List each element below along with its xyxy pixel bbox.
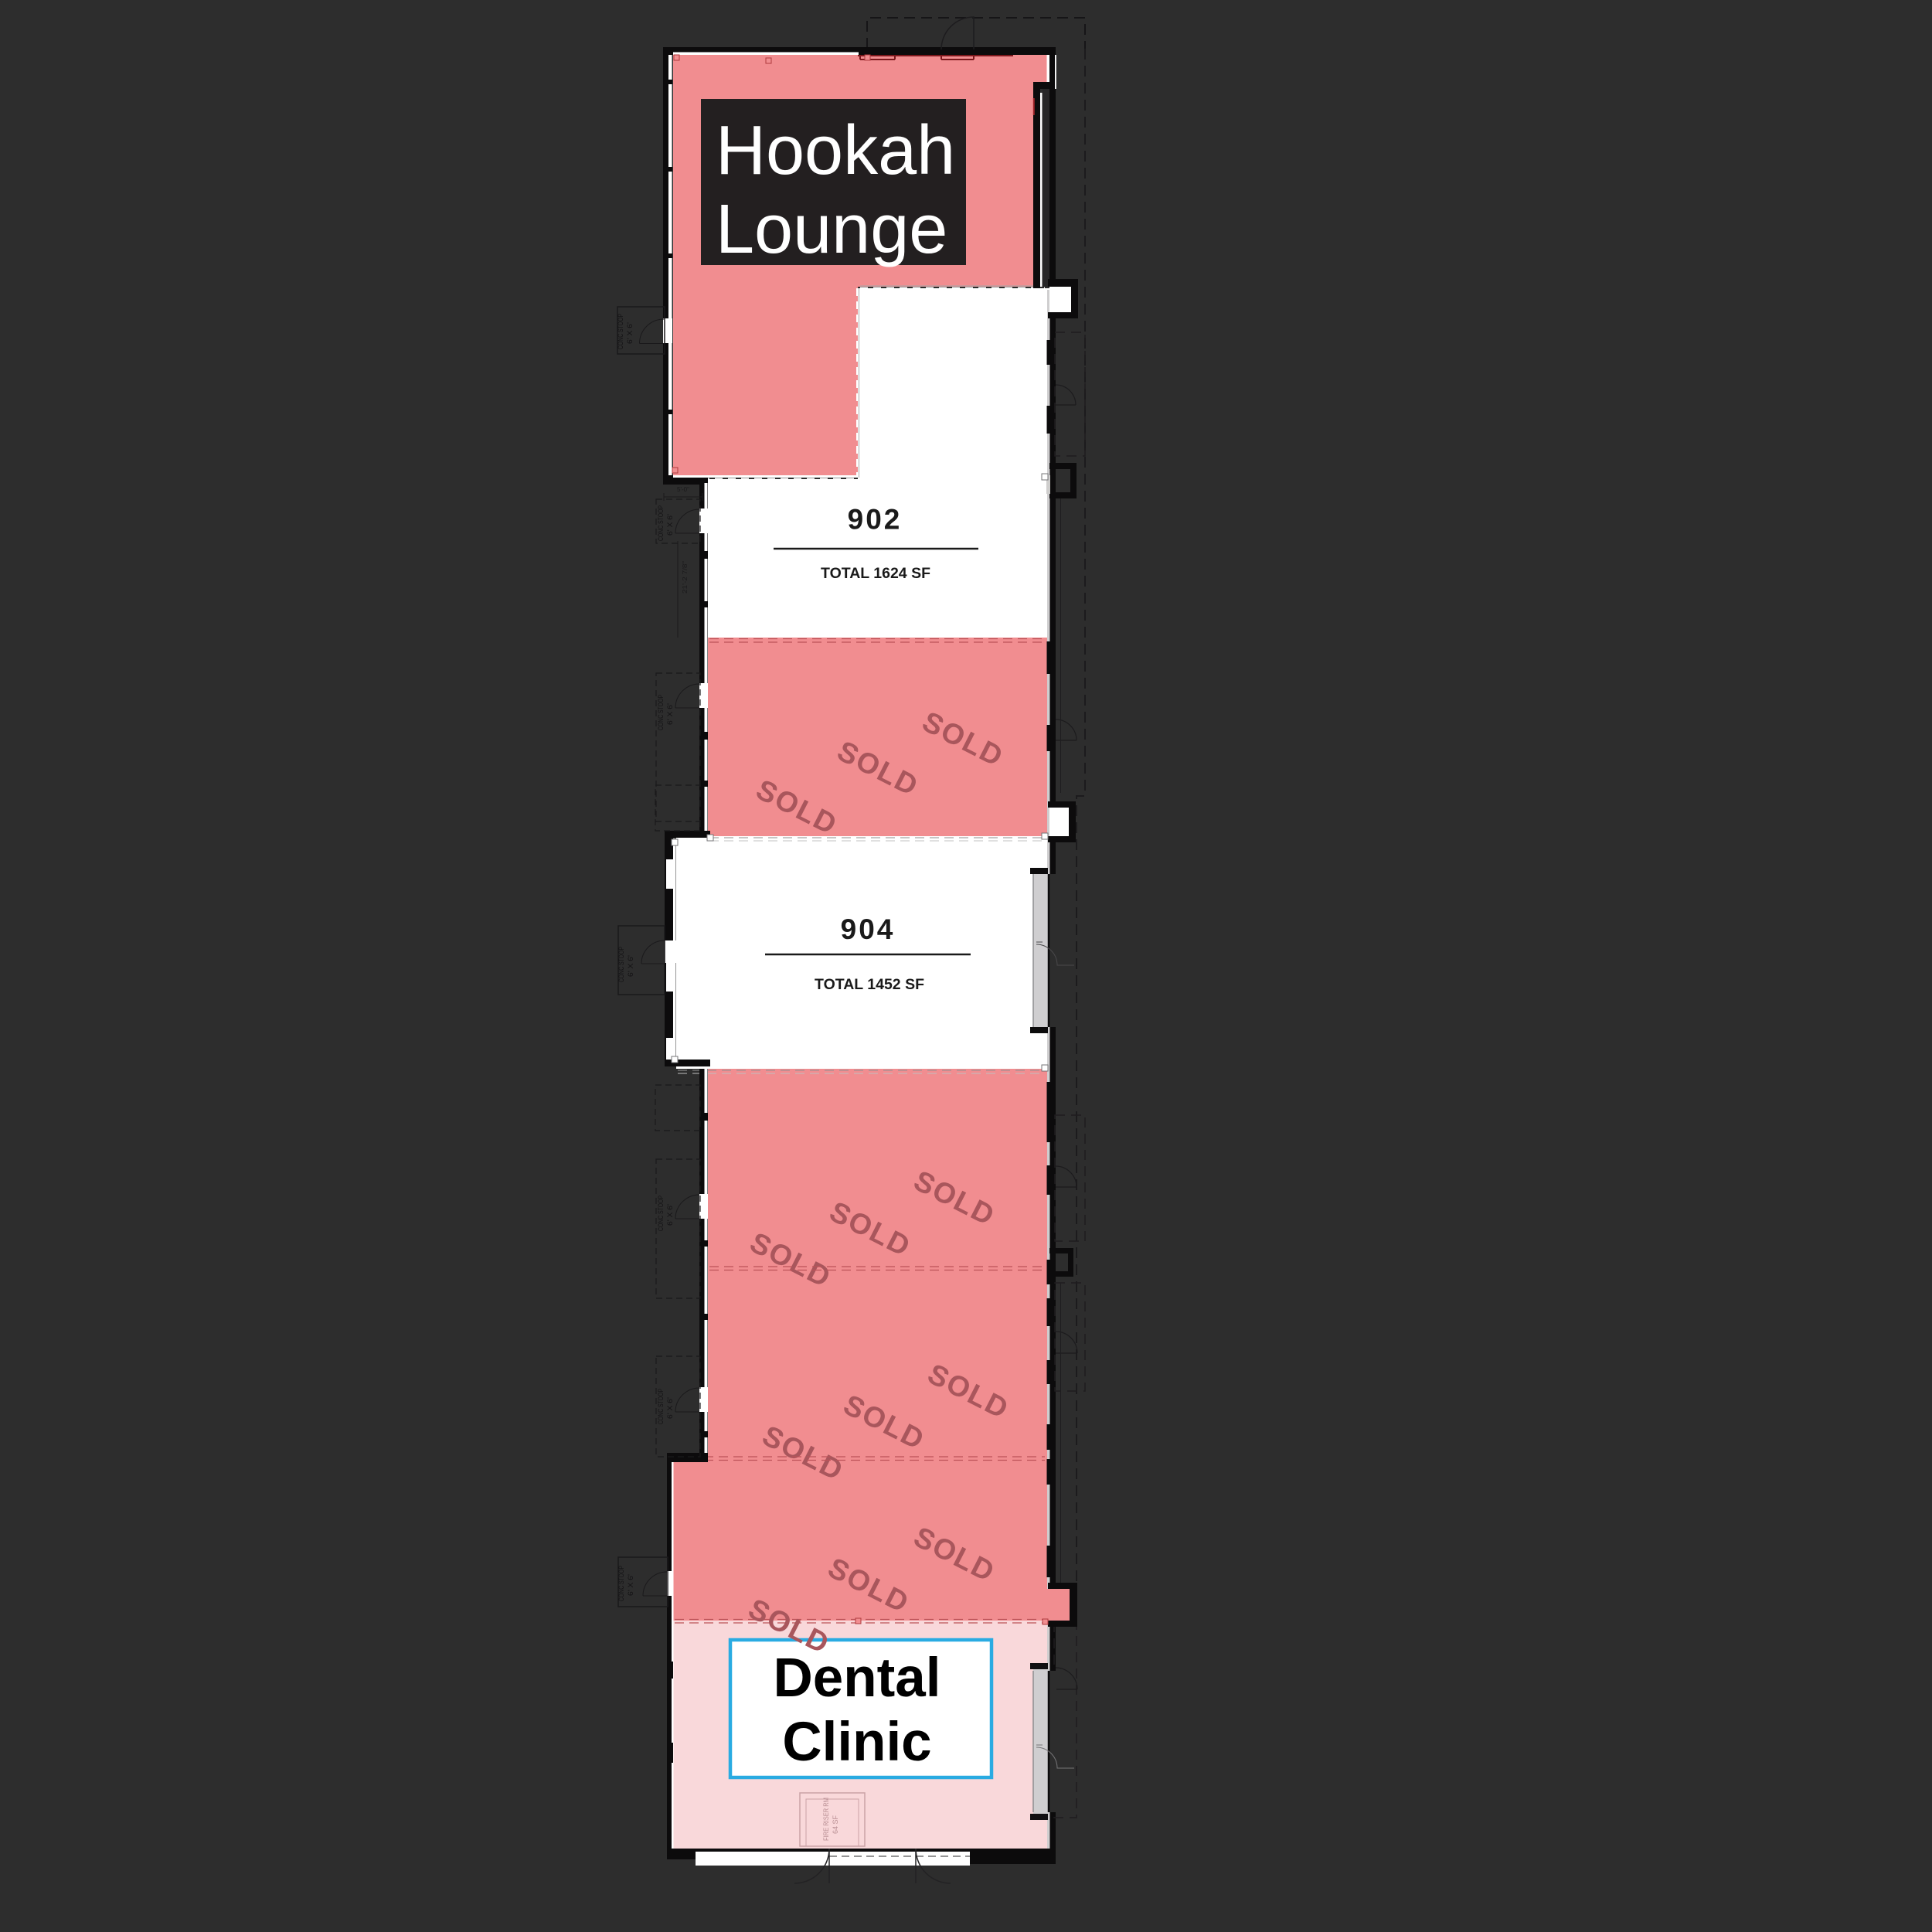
svg-text:CONC STOOP: CONC STOOP: [657, 695, 665, 730]
svg-text:Hookah: Hookah: [716, 112, 955, 189]
svg-text:904: 904: [841, 913, 896, 945]
svg-text:CONC STOOP: CONC STOOP: [657, 1196, 665, 1231]
svg-text:6' X 6': 6' X 6': [666, 703, 674, 725]
svg-text:6' X 6': 6' X 6': [666, 514, 674, 536]
svg-text:CONC STOOP: CONC STOOP: [657, 1389, 665, 1424]
svg-text:21'-2 7/8": 21'-2 7/8": [681, 561, 689, 594]
svg-text:CONC STOOP: CONC STOOP: [617, 947, 625, 982]
svg-text:TOTAL 1452 SF: TOTAL 1452 SF: [815, 976, 924, 993]
svg-text:TOTAL 1624 SF: TOTAL 1624 SF: [821, 565, 930, 582]
svg-text:CONC STOOP: CONC STOOP: [617, 1566, 625, 1601]
svg-text:902: 902: [848, 504, 903, 536]
svg-text:Clinic: Clinic: [782, 1712, 931, 1773]
svg-text:CONC STOOP: CONC STOOP: [617, 314, 624, 349]
svg-text:5'-0": 5'-0": [677, 486, 689, 493]
svg-text:6' X 6': 6' X 6': [666, 1204, 674, 1226]
svg-text:Dental: Dental: [774, 1648, 941, 1709]
svg-text:CONC STOOP: CONC STOOP: [657, 505, 665, 541]
svg-text:6' X 6': 6' X 6': [627, 1574, 634, 1596]
svg-text:6' X 6': 6' X 6': [666, 1397, 674, 1419]
svg-text:6' X 6': 6' X 6': [626, 322, 634, 344]
svg-text:Lounge: Lounge: [716, 191, 947, 268]
svg-text:64 SF: 64 SF: [832, 1815, 839, 1834]
svg-text:FIRE RISER RM: FIRE RISER RM: [822, 1798, 830, 1841]
svg-text:6' X 6': 6' X 6': [627, 955, 634, 977]
